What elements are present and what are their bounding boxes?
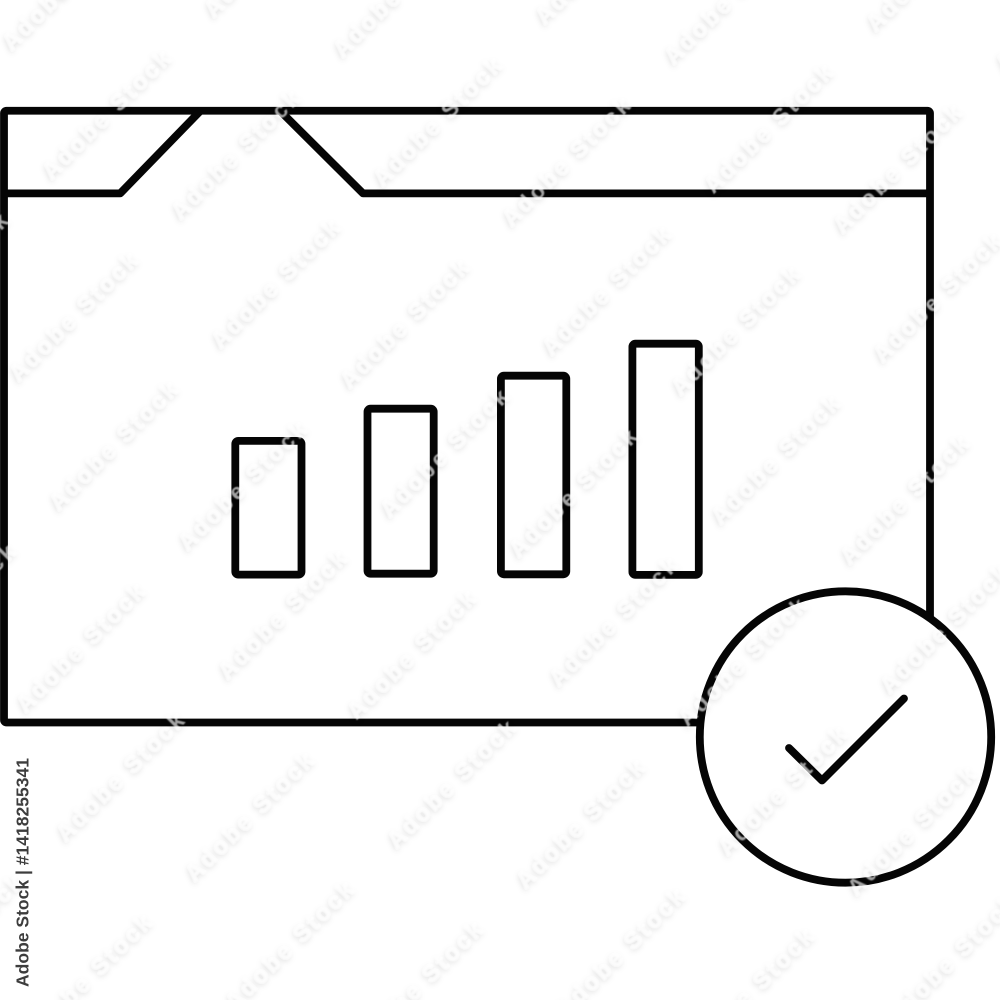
svg-text:Adobe Stock | #1418255341: Adobe Stock | #1418255341 <box>13 758 33 987</box>
